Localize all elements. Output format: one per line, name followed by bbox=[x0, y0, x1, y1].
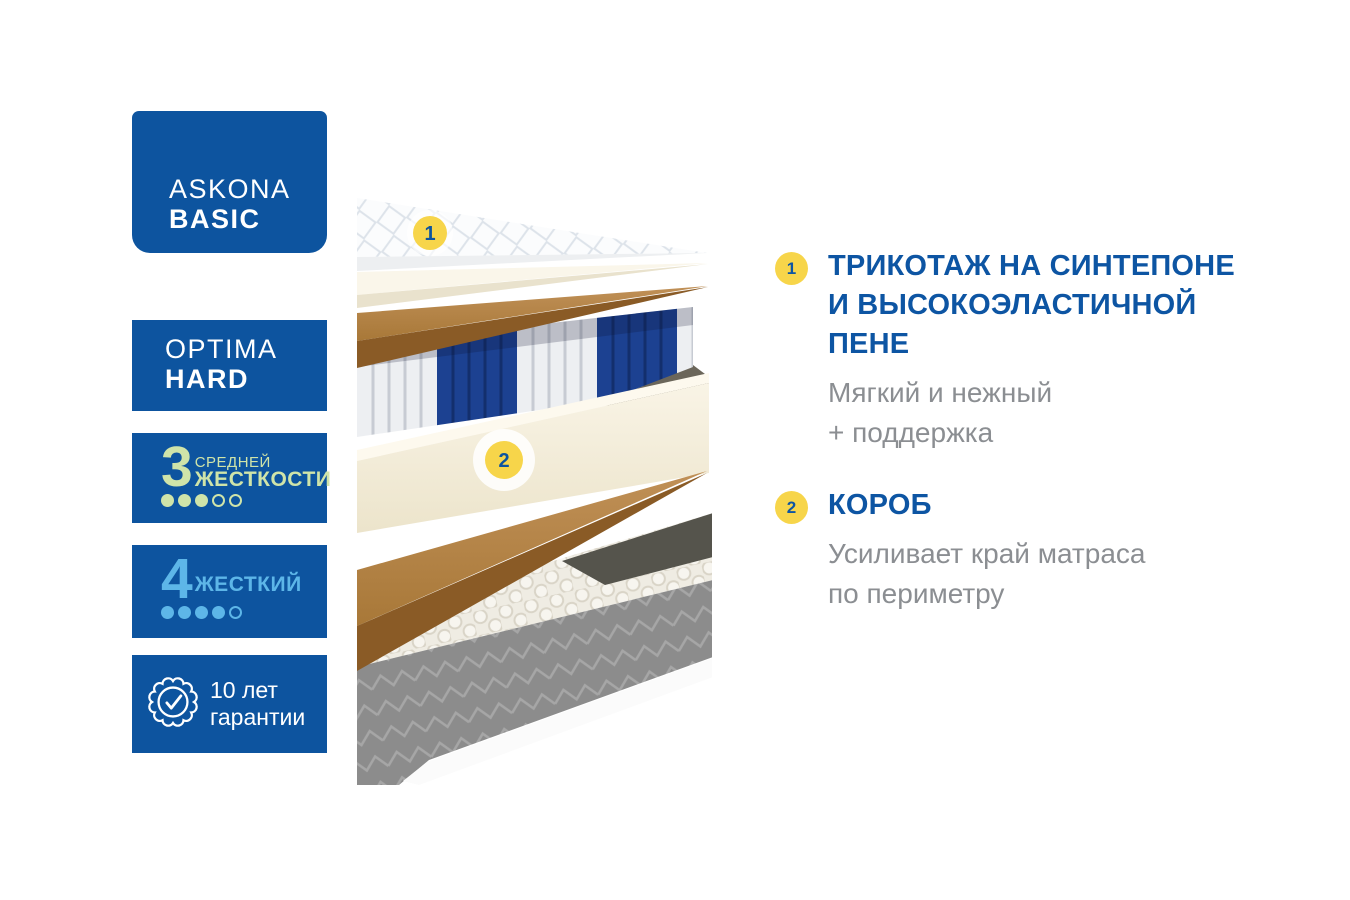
feature-1-title-line1: ТРИКОТАЖ НА СИНТЕПОНЕ bbox=[828, 247, 1268, 286]
firmness-label-line2: ЖЕСТКОСТИ bbox=[195, 470, 332, 489]
model-name: OPTIMA bbox=[165, 334, 327, 364]
warranty-duration: 10 лет bbox=[210, 677, 305, 704]
firmness-dot bbox=[212, 494, 225, 507]
warranty-word: гарантии bbox=[210, 704, 305, 731]
feature-1-number: 1 bbox=[787, 259, 796, 279]
feature-1-desc-line1: Мягкий и нежный bbox=[828, 373, 1268, 413]
feature-1-desc-line2: + поддержка bbox=[828, 413, 1268, 453]
firmness-dot bbox=[178, 606, 191, 619]
feature-1-title-line3: ПЕНЕ bbox=[828, 325, 1268, 364]
model-variant: HARD bbox=[165, 364, 327, 394]
firmness-label: ЖЕСТКИЙ bbox=[195, 573, 302, 597]
firmness-dot bbox=[195, 494, 208, 507]
feature-2-number: 2 bbox=[787, 498, 796, 518]
feature-2-title-line1: КОРОБ bbox=[828, 486, 1268, 525]
firmness-dots-scale bbox=[161, 606, 327, 619]
warranty-seal-check-icon bbox=[145, 674, 201, 735]
firmness-badge-side-a: 3 СРЕДНЕЙ ЖЕСТКОСТИ bbox=[132, 433, 327, 523]
firmness-value: 3 bbox=[161, 446, 193, 489]
diagram-marker-2-number: 2 bbox=[498, 450, 509, 472]
mattress-layers-diagram: 1 2 bbox=[357, 195, 712, 785]
firmness-dot bbox=[178, 494, 191, 507]
brand-name: ASKONA bbox=[169, 174, 327, 204]
feature-2-desc-line1: Усиливает край матраса bbox=[828, 534, 1268, 574]
feature-1: ТРИКОТАЖ НА СИНТЕПОНЕ И ВЫСОКОЭЛАСТИЧНОЙ… bbox=[828, 247, 1268, 453]
firmness-dots-scale bbox=[161, 494, 327, 507]
firmness-dot bbox=[195, 606, 208, 619]
brand-collection: BASIC bbox=[169, 204, 327, 234]
firmness-dot bbox=[161, 494, 174, 507]
firmness-dot bbox=[229, 494, 242, 507]
feature-1-title-line2: И ВЫСОКОЭЛАСТИЧНОЙ bbox=[828, 286, 1268, 325]
firmness-dot bbox=[229, 606, 242, 619]
firmness-value: 4 bbox=[161, 558, 193, 601]
diagram-marker-1: 1 bbox=[407, 210, 453, 256]
firmness-dot bbox=[212, 606, 225, 619]
feature-2-number-badge: 2 bbox=[775, 491, 808, 524]
feature-1-number-badge: 1 bbox=[775, 252, 808, 285]
firmness-badge-side-b: 4 ЖЕСТКИЙ bbox=[132, 545, 327, 638]
feature-2-desc-line2: по периметру bbox=[828, 574, 1268, 614]
diagram-marker-2: 2 bbox=[473, 429, 535, 491]
brand-badge: ASKONA BASIC bbox=[132, 111, 327, 253]
model-badge: OPTIMA HARD bbox=[132, 320, 327, 411]
infographic-canvas: ASKONA BASIC OPTIMA HARD 3 СРЕДНЕЙ ЖЕСТК… bbox=[0, 0, 1350, 900]
warranty-badge: 10 лет гарантии bbox=[132, 655, 327, 753]
diagram-marker-1-number: 1 bbox=[424, 223, 435, 245]
feature-2: КОРОБ Усиливает край матраса по периметр… bbox=[828, 486, 1268, 614]
firmness-dot bbox=[161, 606, 174, 619]
